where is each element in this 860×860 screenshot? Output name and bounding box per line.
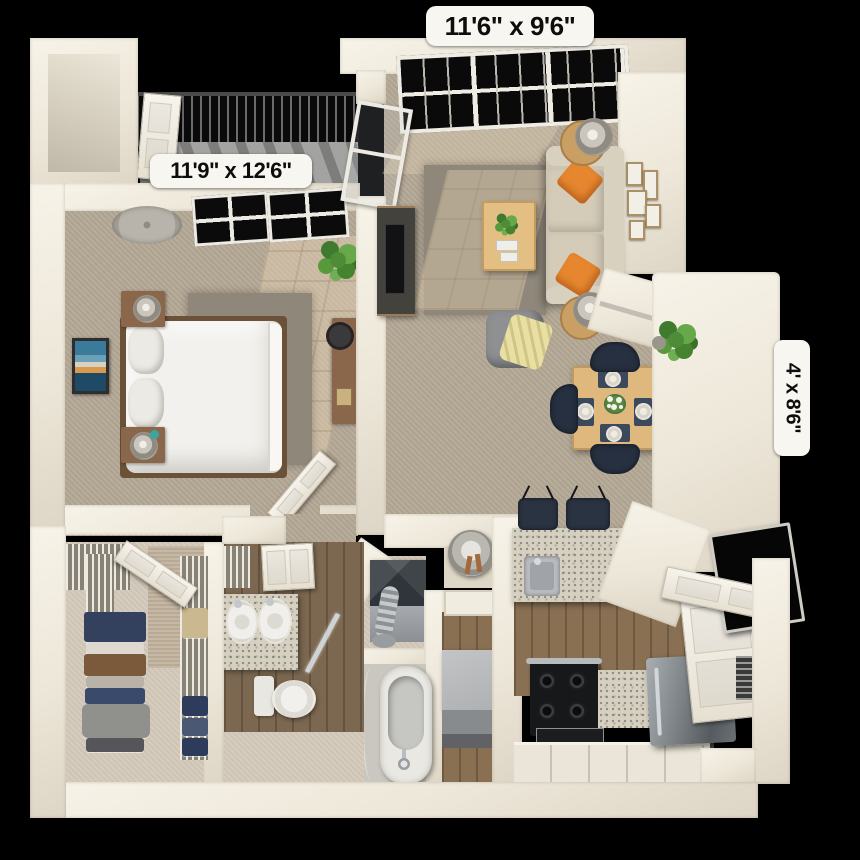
plate bbox=[577, 403, 594, 420]
bedroom-window bbox=[266, 187, 349, 242]
kitchen-right-wall bbox=[752, 558, 790, 784]
folded-clothes-navy bbox=[85, 688, 145, 704]
linen-shelves bbox=[224, 546, 250, 588]
gallery-frame bbox=[645, 204, 661, 228]
kitchen-counter bbox=[598, 670, 652, 728]
sink-faucet bbox=[534, 558, 541, 565]
washer-base bbox=[442, 734, 496, 748]
linen-closet-doors bbox=[261, 543, 315, 592]
dimension-text-bedroom: 11'9" x 12'6" bbox=[170, 158, 291, 184]
entry-corner-wall bbox=[700, 748, 756, 784]
bedroom-plant bbox=[330, 252, 346, 268]
water-heater bbox=[448, 530, 494, 576]
shower-curtain-rod bbox=[362, 668, 380, 780]
wall-art bbox=[72, 338, 109, 394]
burner bbox=[568, 672, 586, 690]
table-lamp bbox=[133, 295, 161, 323]
coffee-table-plant bbox=[502, 220, 511, 229]
door-panel bbox=[289, 549, 310, 584]
tv bbox=[385, 224, 405, 294]
dimension-text-living: 11'6" x 9'6" bbox=[445, 11, 576, 42]
folded-clothes-gray-pile bbox=[82, 704, 150, 738]
plate bbox=[606, 426, 622, 442]
decor-ball bbox=[150, 430, 159, 439]
bathroom-lower-floor bbox=[224, 732, 364, 784]
dimension-label-patio: 4' x 8'6" bbox=[774, 340, 810, 456]
kitchen-sink-basin bbox=[530, 562, 554, 590]
burner bbox=[538, 672, 556, 690]
ceiling-fan bbox=[112, 206, 182, 244]
bathtub-basin bbox=[388, 676, 424, 750]
vanity-sink bbox=[258, 598, 292, 644]
washer-front bbox=[442, 710, 496, 734]
dimension-text-patio: 4' x 8'6" bbox=[781, 363, 804, 433]
plant-pot bbox=[652, 336, 666, 350]
washer bbox=[442, 650, 496, 710]
dining-chair bbox=[590, 342, 640, 372]
desk-chair bbox=[326, 322, 354, 350]
dimension-label-living: 11'6" x 9'6" bbox=[426, 6, 594, 46]
bedroom-left-wall bbox=[30, 183, 65, 535]
vent-base bbox=[372, 634, 396, 648]
vanity-sink bbox=[226, 600, 258, 644]
sink-faucet bbox=[234, 600, 242, 608]
folded-clothes-blue bbox=[182, 718, 208, 736]
folded-clothes-navy bbox=[84, 612, 146, 642]
range-handle bbox=[526, 658, 602, 664]
flower-centerpiece bbox=[604, 394, 626, 414]
dining-plant bbox=[668, 332, 684, 348]
folded-clothes-gray bbox=[86, 676, 144, 688]
folded-clothes-tan bbox=[182, 608, 208, 638]
burner bbox=[538, 702, 556, 720]
glass-door-rail bbox=[353, 148, 401, 160]
folded-clothes-dark bbox=[86, 738, 144, 752]
serving-tray bbox=[496, 240, 518, 251]
dimension-label-bedroom: 11'9" x 12'6" bbox=[150, 154, 312, 188]
gallery-frame bbox=[629, 220, 645, 240]
folded-clothes-brown bbox=[84, 654, 146, 676]
toilet-tank bbox=[254, 676, 274, 716]
floor-lamp bbox=[575, 118, 613, 156]
wall-art-canvas bbox=[75, 341, 106, 391]
desk-accessory bbox=[336, 388, 352, 406]
plate bbox=[605, 371, 621, 387]
fridge-handle bbox=[654, 668, 662, 736]
range bbox=[530, 662, 598, 736]
lower-cabinets bbox=[514, 742, 710, 785]
bed-duvet-fold bbox=[268, 323, 282, 471]
door-panel bbox=[147, 102, 172, 134]
balcony-recess bbox=[48, 54, 120, 172]
folded-clothes-white bbox=[86, 642, 144, 654]
bottom-outer-wall bbox=[30, 782, 758, 818]
dining-chair bbox=[550, 384, 578, 434]
door-panel bbox=[266, 550, 287, 585]
bar-stool bbox=[518, 498, 558, 530]
toilet-bowl bbox=[272, 680, 316, 718]
left-outer-wall bbox=[30, 526, 66, 818]
gallery-frame bbox=[627, 190, 647, 216]
bar-stool bbox=[566, 498, 610, 530]
access-panel bbox=[444, 590, 494, 616]
flower-blooms bbox=[607, 396, 613, 402]
folded-clothes-navy bbox=[182, 696, 208, 716]
bedroom-window bbox=[191, 191, 270, 246]
folded-clothes-navy bbox=[182, 738, 208, 756]
burner bbox=[568, 702, 586, 720]
tub-faucet-handle bbox=[398, 758, 410, 770]
living-left-wall-upper bbox=[356, 70, 386, 104]
gallery-frame bbox=[626, 162, 643, 186]
serving-tray bbox=[500, 252, 518, 262]
bathroom-top-wall bbox=[222, 516, 286, 544]
floor-plan-stage: 11'6" x 9'6" 11'9" x 12'6" 4' x 8'6" bbox=[0, 0, 860, 860]
door-panel bbox=[675, 576, 722, 603]
plate bbox=[635, 403, 652, 420]
bed-pillow bbox=[128, 378, 164, 428]
sink-faucet bbox=[266, 598, 274, 606]
bed-pillow bbox=[128, 326, 164, 374]
